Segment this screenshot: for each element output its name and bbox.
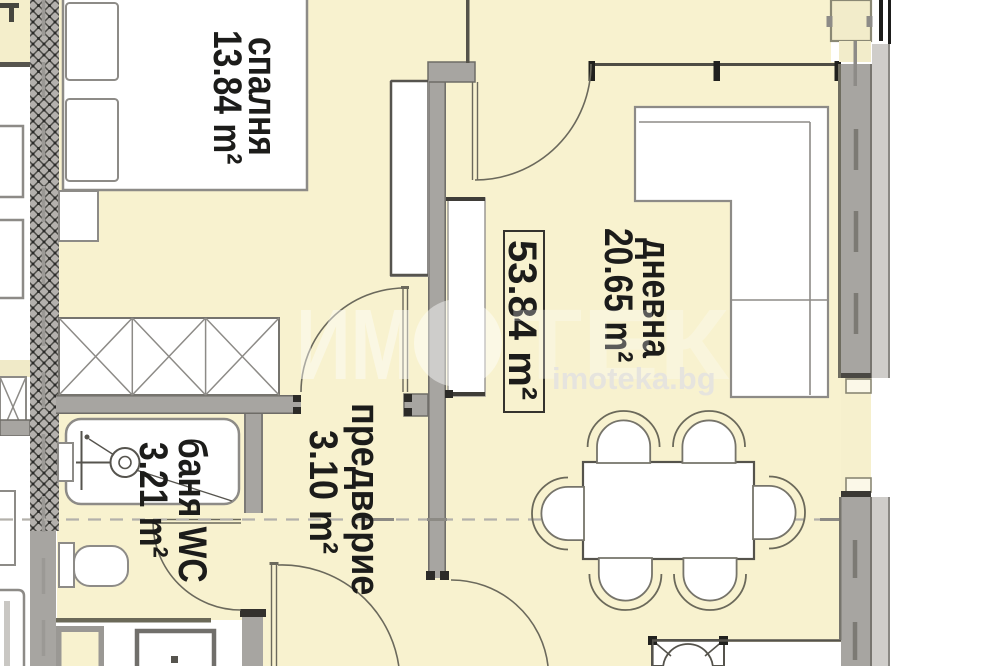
svg-text:предверие: предверие bbox=[343, 403, 387, 595]
svg-text:ИМ: ИМ bbox=[296, 289, 414, 401]
svg-text:3.21 m²: 3.21 m² bbox=[131, 442, 175, 558]
svg-text:баня WC: баня WC bbox=[170, 438, 214, 583]
svg-text:13.84 m²: 13.84 m² bbox=[205, 30, 249, 164]
svg-text:3.10 m²: 3.10 m² bbox=[301, 430, 345, 554]
svg-text:imoteka.bg: imoteka.bg bbox=[552, 361, 716, 396]
